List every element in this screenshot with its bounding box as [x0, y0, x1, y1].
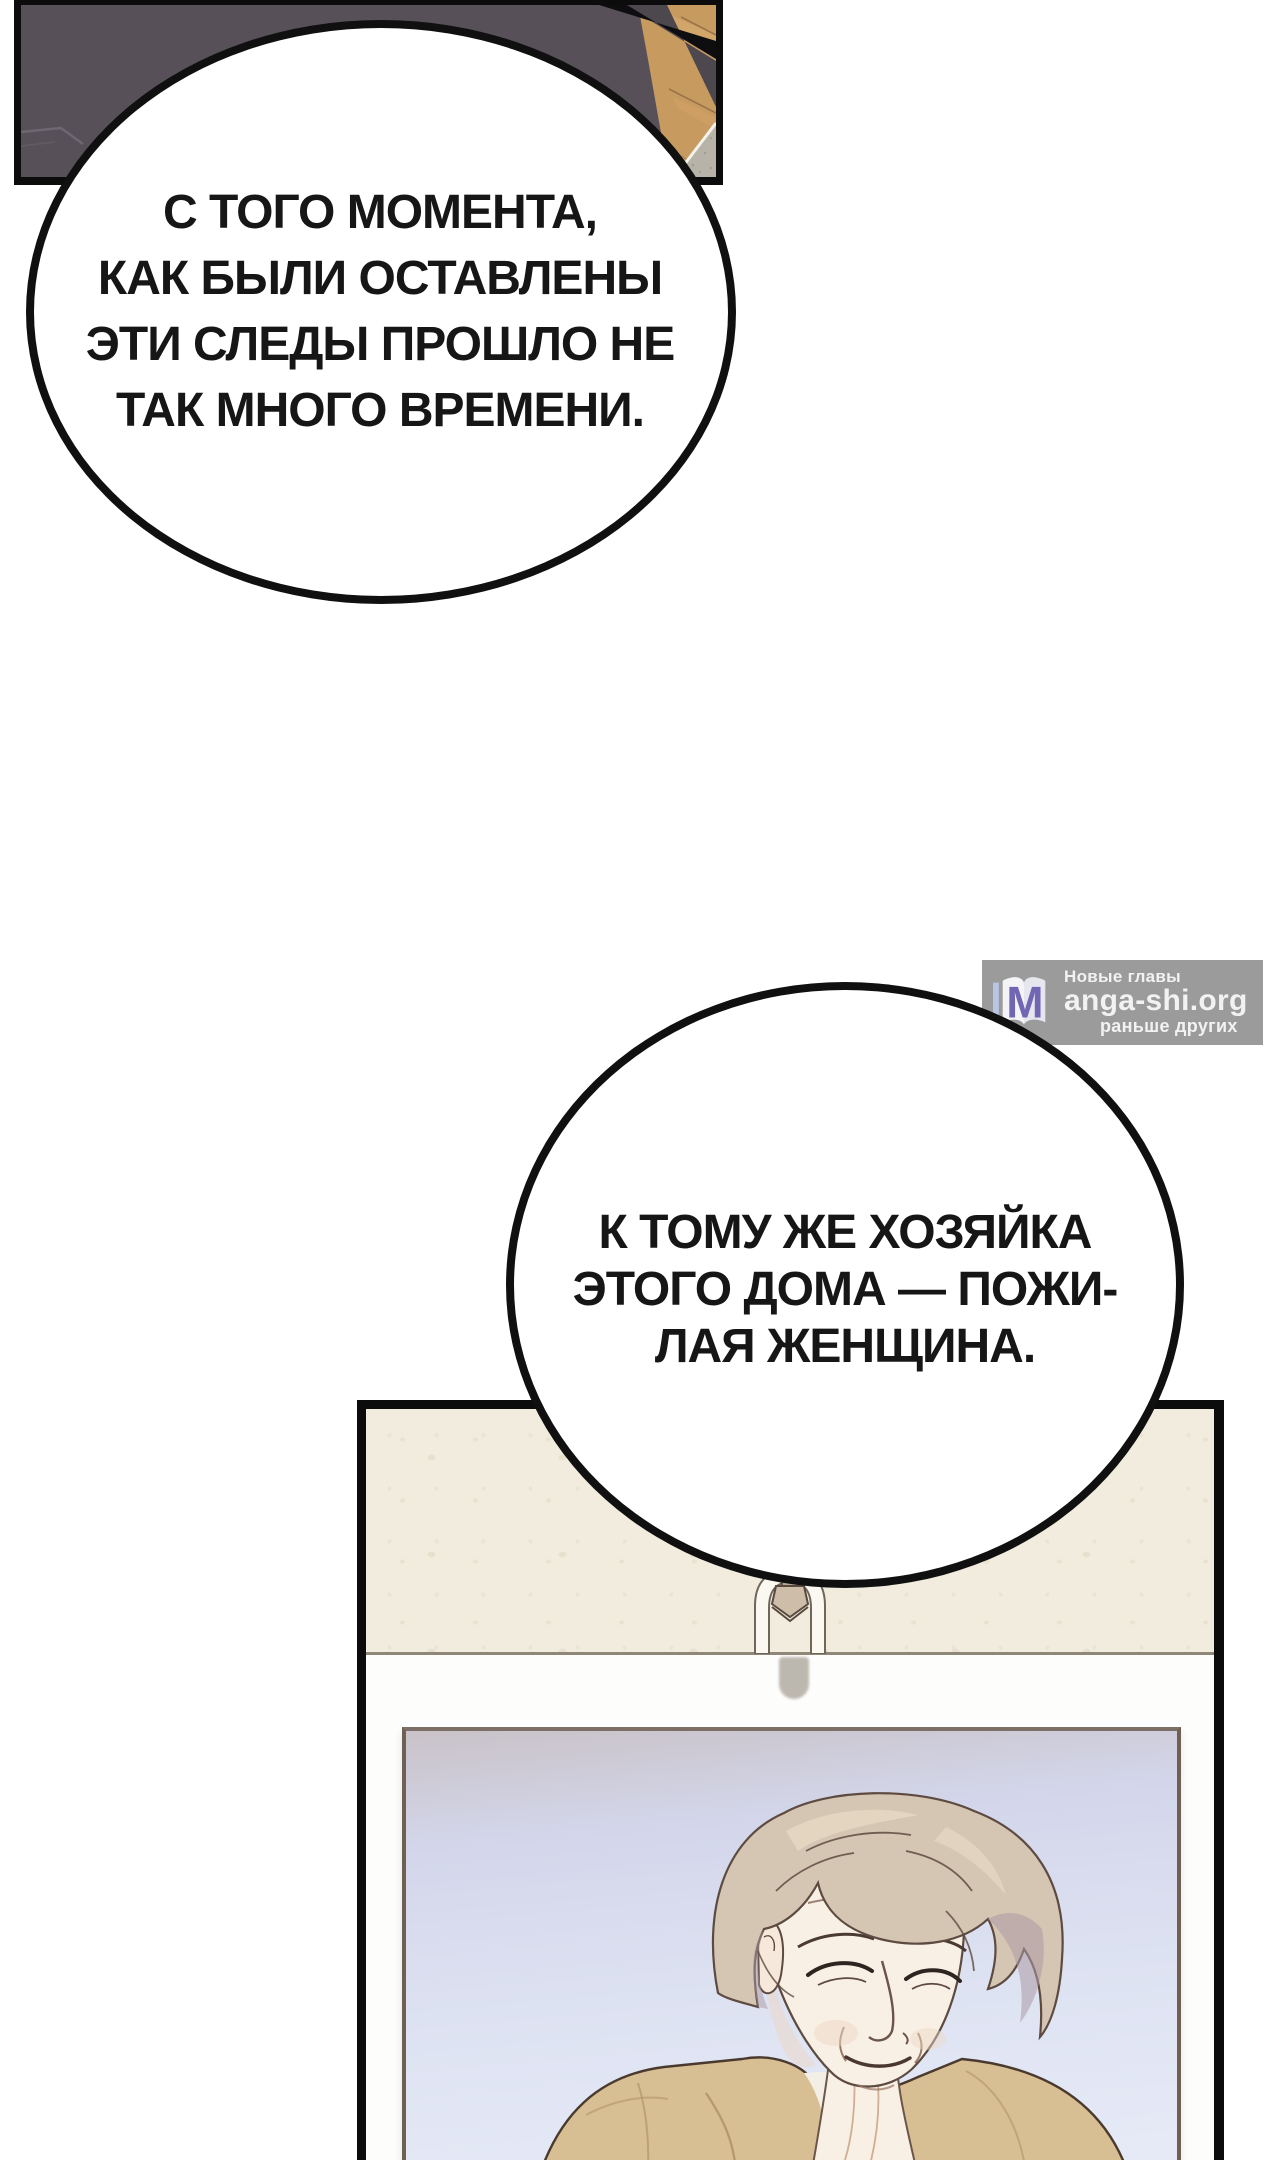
watermark-logo-letter: M — [1006, 979, 1043, 1028]
bubble2-line3: ЛАЯ ЖЕНЩИНА. — [545, 1318, 1145, 1375]
bubble2-line1: К ТОМУ ЖЕ ХОЗЯЙКА — [545, 1204, 1145, 1261]
bubble2-line2: ЭТОГО ДОМА — ПОЖИ- — [545, 1261, 1145, 1318]
watermark-site-name: anga-shi.org — [1064, 986, 1259, 1016]
speech-bubble-2-text: К ТОМУ ЖЕ ХОЗЯЙКА ЭТОГО ДОМА — ПОЖИ- ЛАЯ… — [545, 1204, 1145, 1375]
manga-page: С ТОГО МОМЕНТА, КАК БЫЛИ ОСТАВЛЕНЫ ЭТИ С… — [0, 0, 1271, 2160]
bubble1-line2: КАК БЫЛИ ОСТАВЛЕНЫ — [50, 246, 710, 312]
watermark-tagline-bottom: раньше других — [1100, 1016, 1259, 1036]
speech-bubble-1-text: С ТОГО МОМЕНТА, КАК БЫЛИ ОСТАВЛЕНЫ ЭТИ С… — [50, 180, 710, 444]
bubble1-line1: С ТОГО МОМЕНТА, — [50, 180, 710, 246]
bubble1-line4: ТАК МНОГО ВРЕМЕНИ. — [50, 378, 710, 444]
bubble1-line3: ЭТИ СЛЕДЫ ПРОШЛО НЕ — [50, 312, 710, 378]
watermark-text: Новые главы anga-shi.org раньше других — [1064, 967, 1259, 1036]
framed-photo — [402, 1727, 1181, 2160]
strap-shadow — [779, 1657, 809, 1699]
elderly-woman-portrait — [406, 1731, 1177, 2160]
